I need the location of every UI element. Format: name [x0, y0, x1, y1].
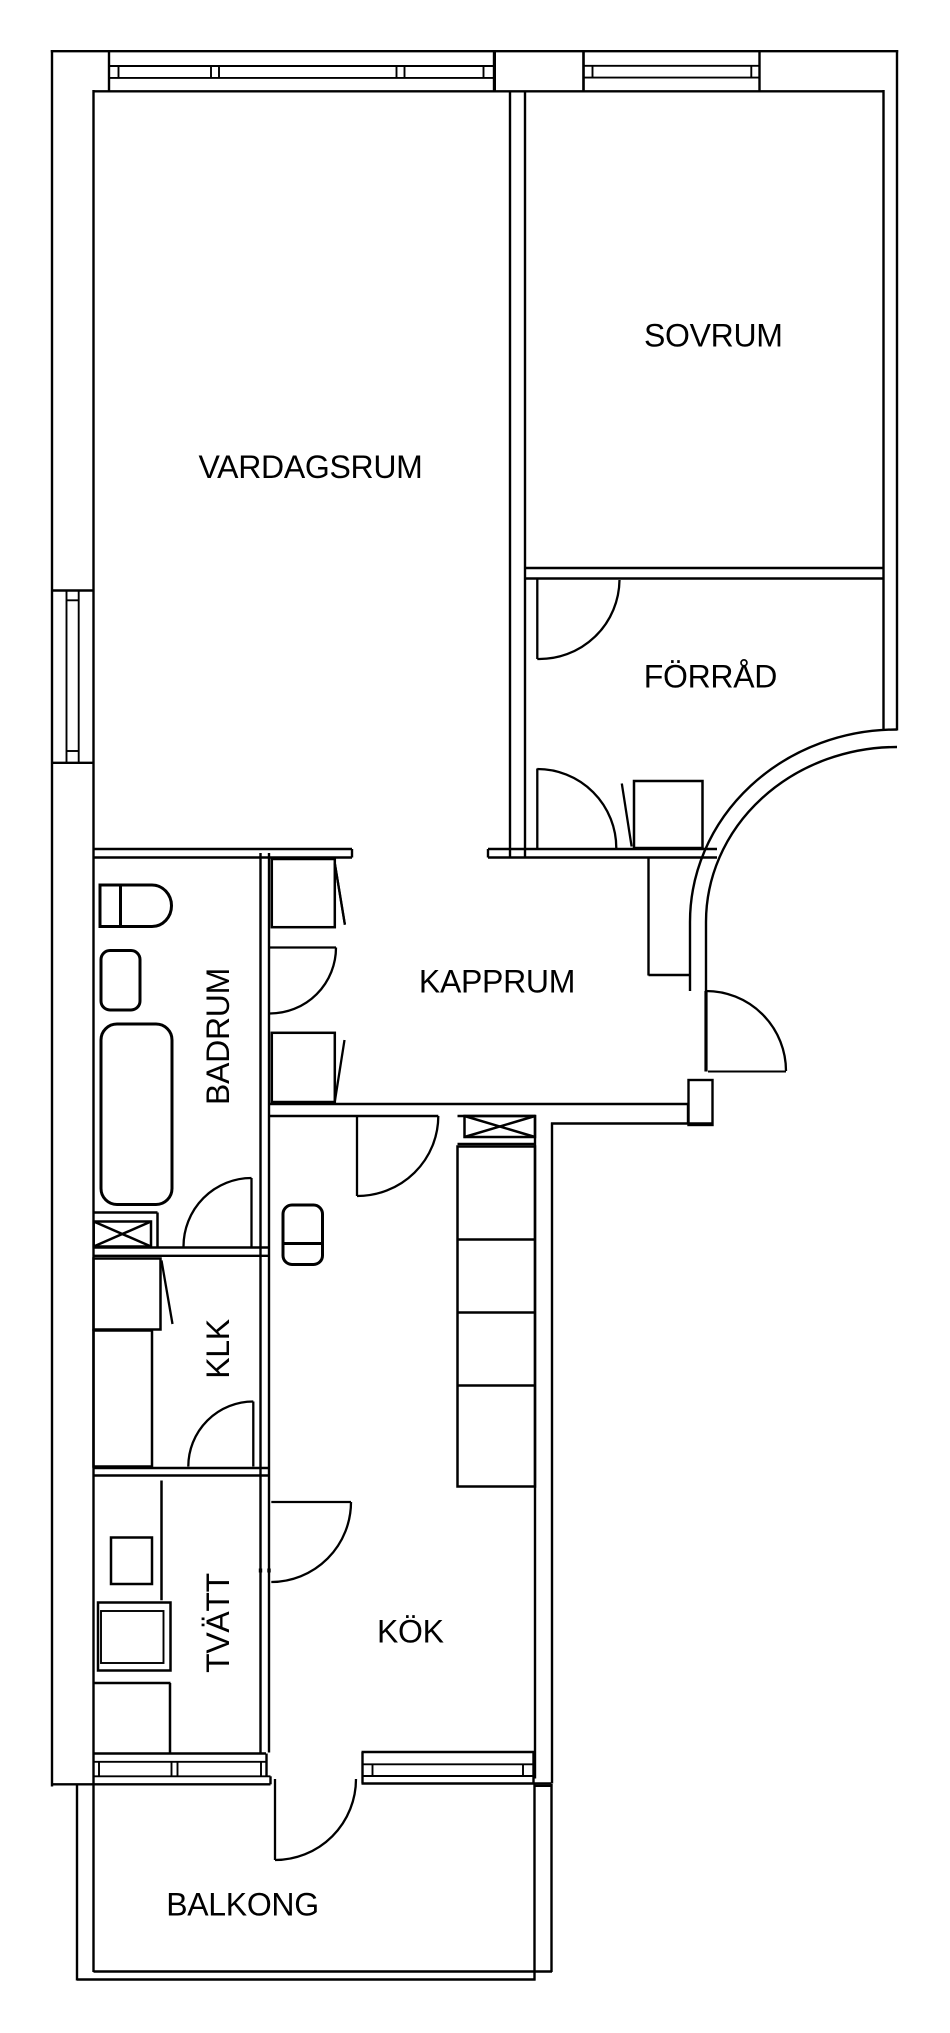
- svg-text:KÖK: KÖK: [377, 1614, 444, 1650]
- svg-text:FÖRRÅD: FÖRRÅD: [644, 659, 777, 695]
- svg-text:TVÄTT: TVÄTT: [200, 1573, 236, 1673]
- svg-text:KAPPRUM: KAPPRUM: [419, 964, 575, 1000]
- svg-text:BALKONG: BALKONG: [166, 1887, 319, 1923]
- svg-text:BADRUM: BADRUM: [200, 968, 236, 1105]
- svg-text:SOVRUM: SOVRUM: [644, 318, 783, 354]
- svg-text:KLK: KLK: [200, 1319, 236, 1379]
- svg-text:VARDAGSRUM: VARDAGSRUM: [199, 449, 423, 485]
